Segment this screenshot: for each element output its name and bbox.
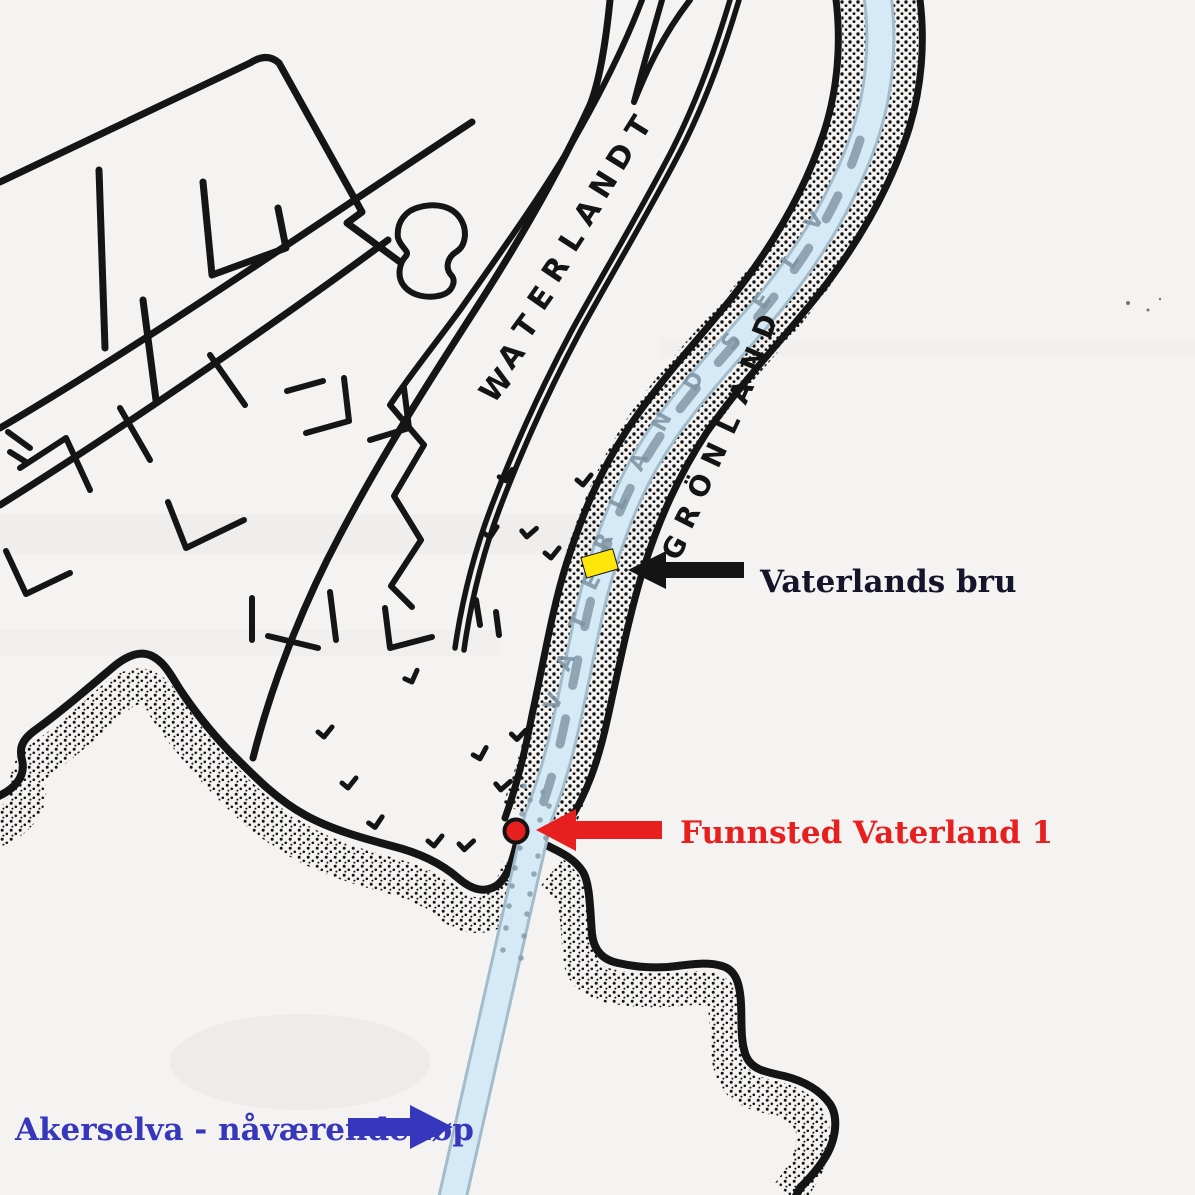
slate-dot <box>506 903 512 909</box>
slate-dot <box>531 871 537 877</box>
slate-dot <box>521 783 527 789</box>
slate-dot <box>524 911 530 917</box>
site-dot-marker <box>505 820 528 843</box>
slate-dot <box>503 925 509 931</box>
slate-dot <box>537 817 543 823</box>
bridge-label: Vaterlands bru <box>759 564 1017 600</box>
site-label: Funnsted Vaterland 1 <box>680 815 1053 851</box>
slate-dot <box>535 853 541 859</box>
slate-dot <box>519 811 525 817</box>
slate-dot <box>546 803 552 809</box>
slate-dot <box>517 845 523 851</box>
slate-dot <box>540 789 546 795</box>
slate-dot <box>527 891 533 897</box>
historical-map-svg: VATERLANDSELV WATERLANDT GRÖN <box>0 0 1195 1195</box>
slate-dot <box>518 955 524 961</box>
map-canvas: VATERLANDSELV WATERLANDT GRÖN <box>0 0 1195 1195</box>
slate-dot <box>527 797 533 803</box>
annotation-river: Akerselva - nåværende løp <box>14 1105 474 1149</box>
slate-dot <box>509 883 515 889</box>
slate-dot <box>512 865 518 871</box>
slate-dot <box>500 947 506 953</box>
river-label: Akerselva - nåværende løp <box>14 1111 474 1148</box>
slate-dot <box>521 933 527 939</box>
